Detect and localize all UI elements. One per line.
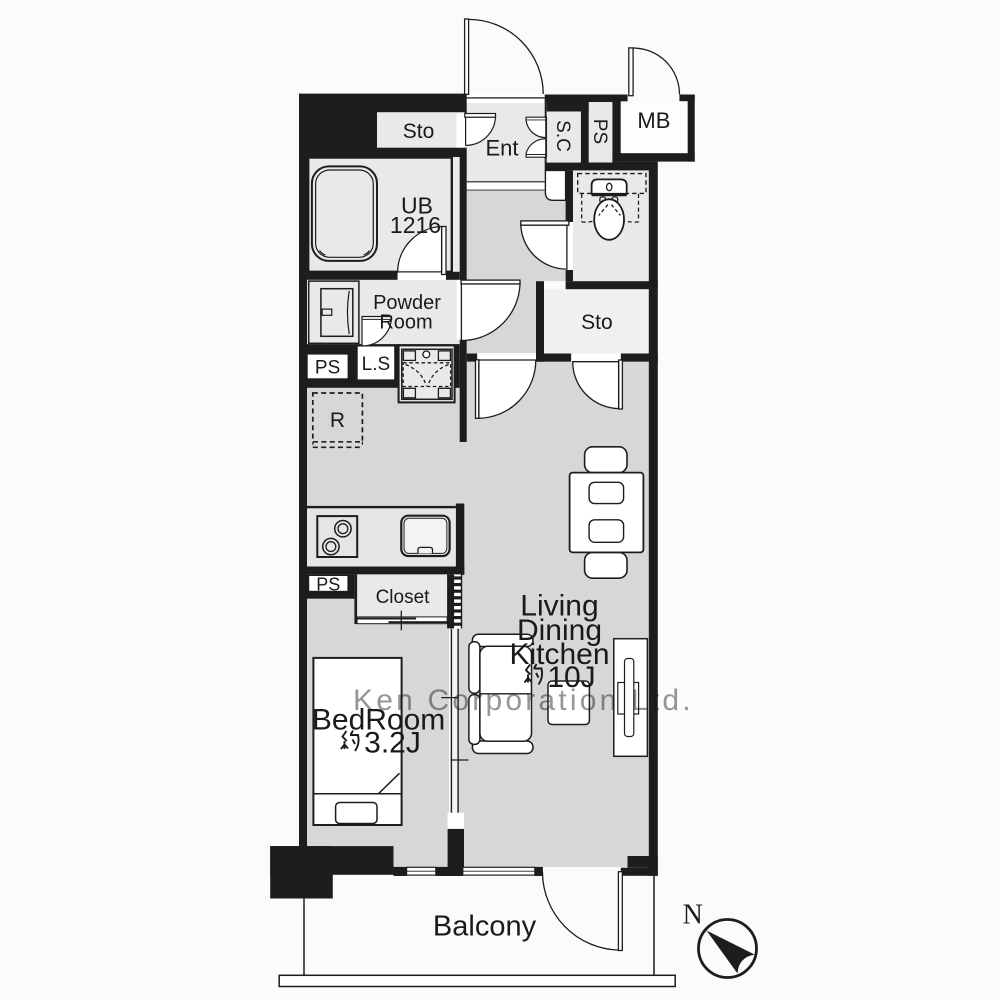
svg-text:S.C: S.C <box>552 120 573 152</box>
svg-text:Sto: Sto <box>581 311 613 334</box>
svg-text:PS: PS <box>316 574 340 594</box>
svg-text:PS: PS <box>315 357 340 378</box>
svg-text:PS: PS <box>589 119 610 144</box>
svg-text:N: N <box>683 900 703 931</box>
svg-text:Room: Room <box>379 312 432 334</box>
svg-text:Closet: Closet <box>376 587 431 608</box>
svg-text:1216: 1216 <box>390 212 441 238</box>
svg-text:10J: 10J <box>547 661 595 694</box>
svg-text:3.2J: 3.2J <box>364 727 421 760</box>
svg-text:Ent: Ent <box>485 136 518 161</box>
svg-text:Balcony: Balcony <box>433 911 537 943</box>
svg-text:L.S: L.S <box>362 354 391 375</box>
svg-text:MB: MB <box>637 108 670 133</box>
svg-text:Sto: Sto <box>403 120 435 143</box>
svg-text:R: R <box>330 409 345 432</box>
